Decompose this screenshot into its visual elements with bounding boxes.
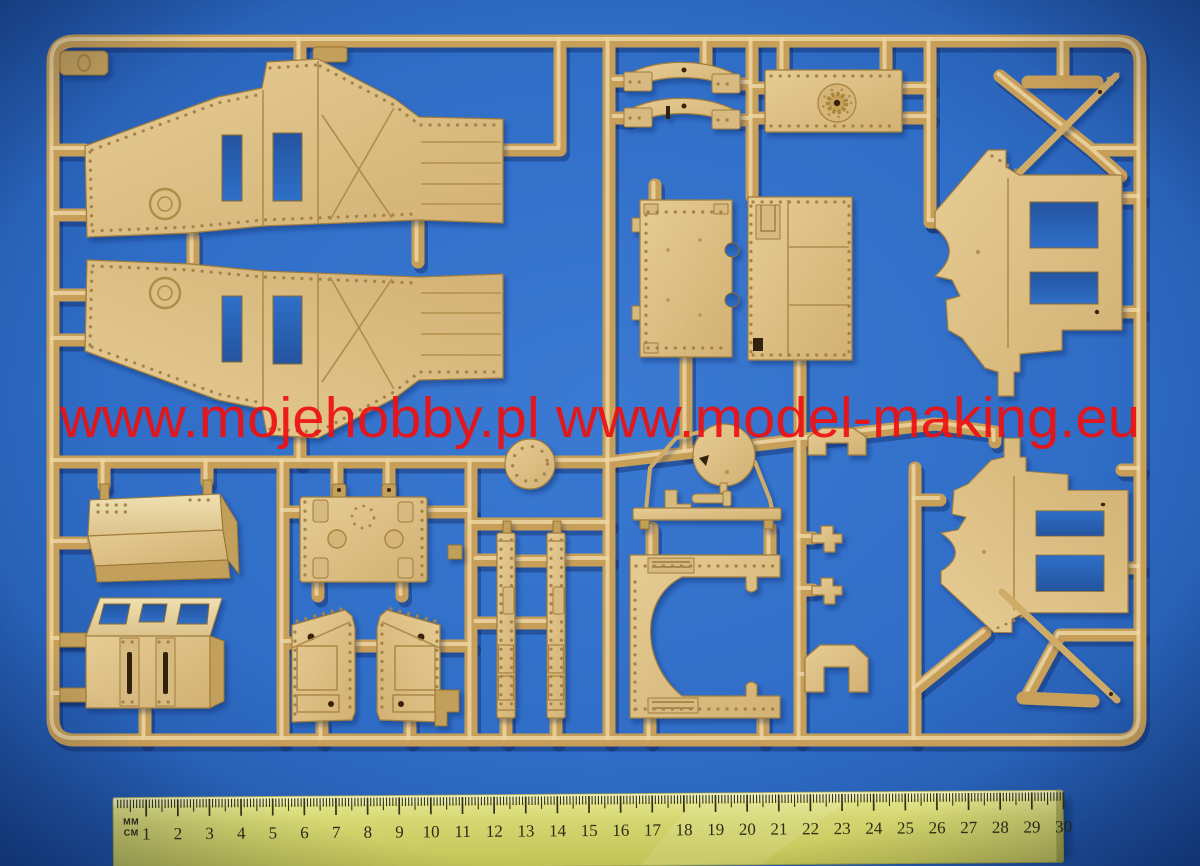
photo-stage: www.mojehobby.pl www.model-making.eu 123…	[0, 0, 1200, 866]
vignette-overlay	[0, 0, 1200, 866]
photo-canvas: www.mojehobby.pl www.model-making.eu 123…	[0, 0, 1200, 866]
